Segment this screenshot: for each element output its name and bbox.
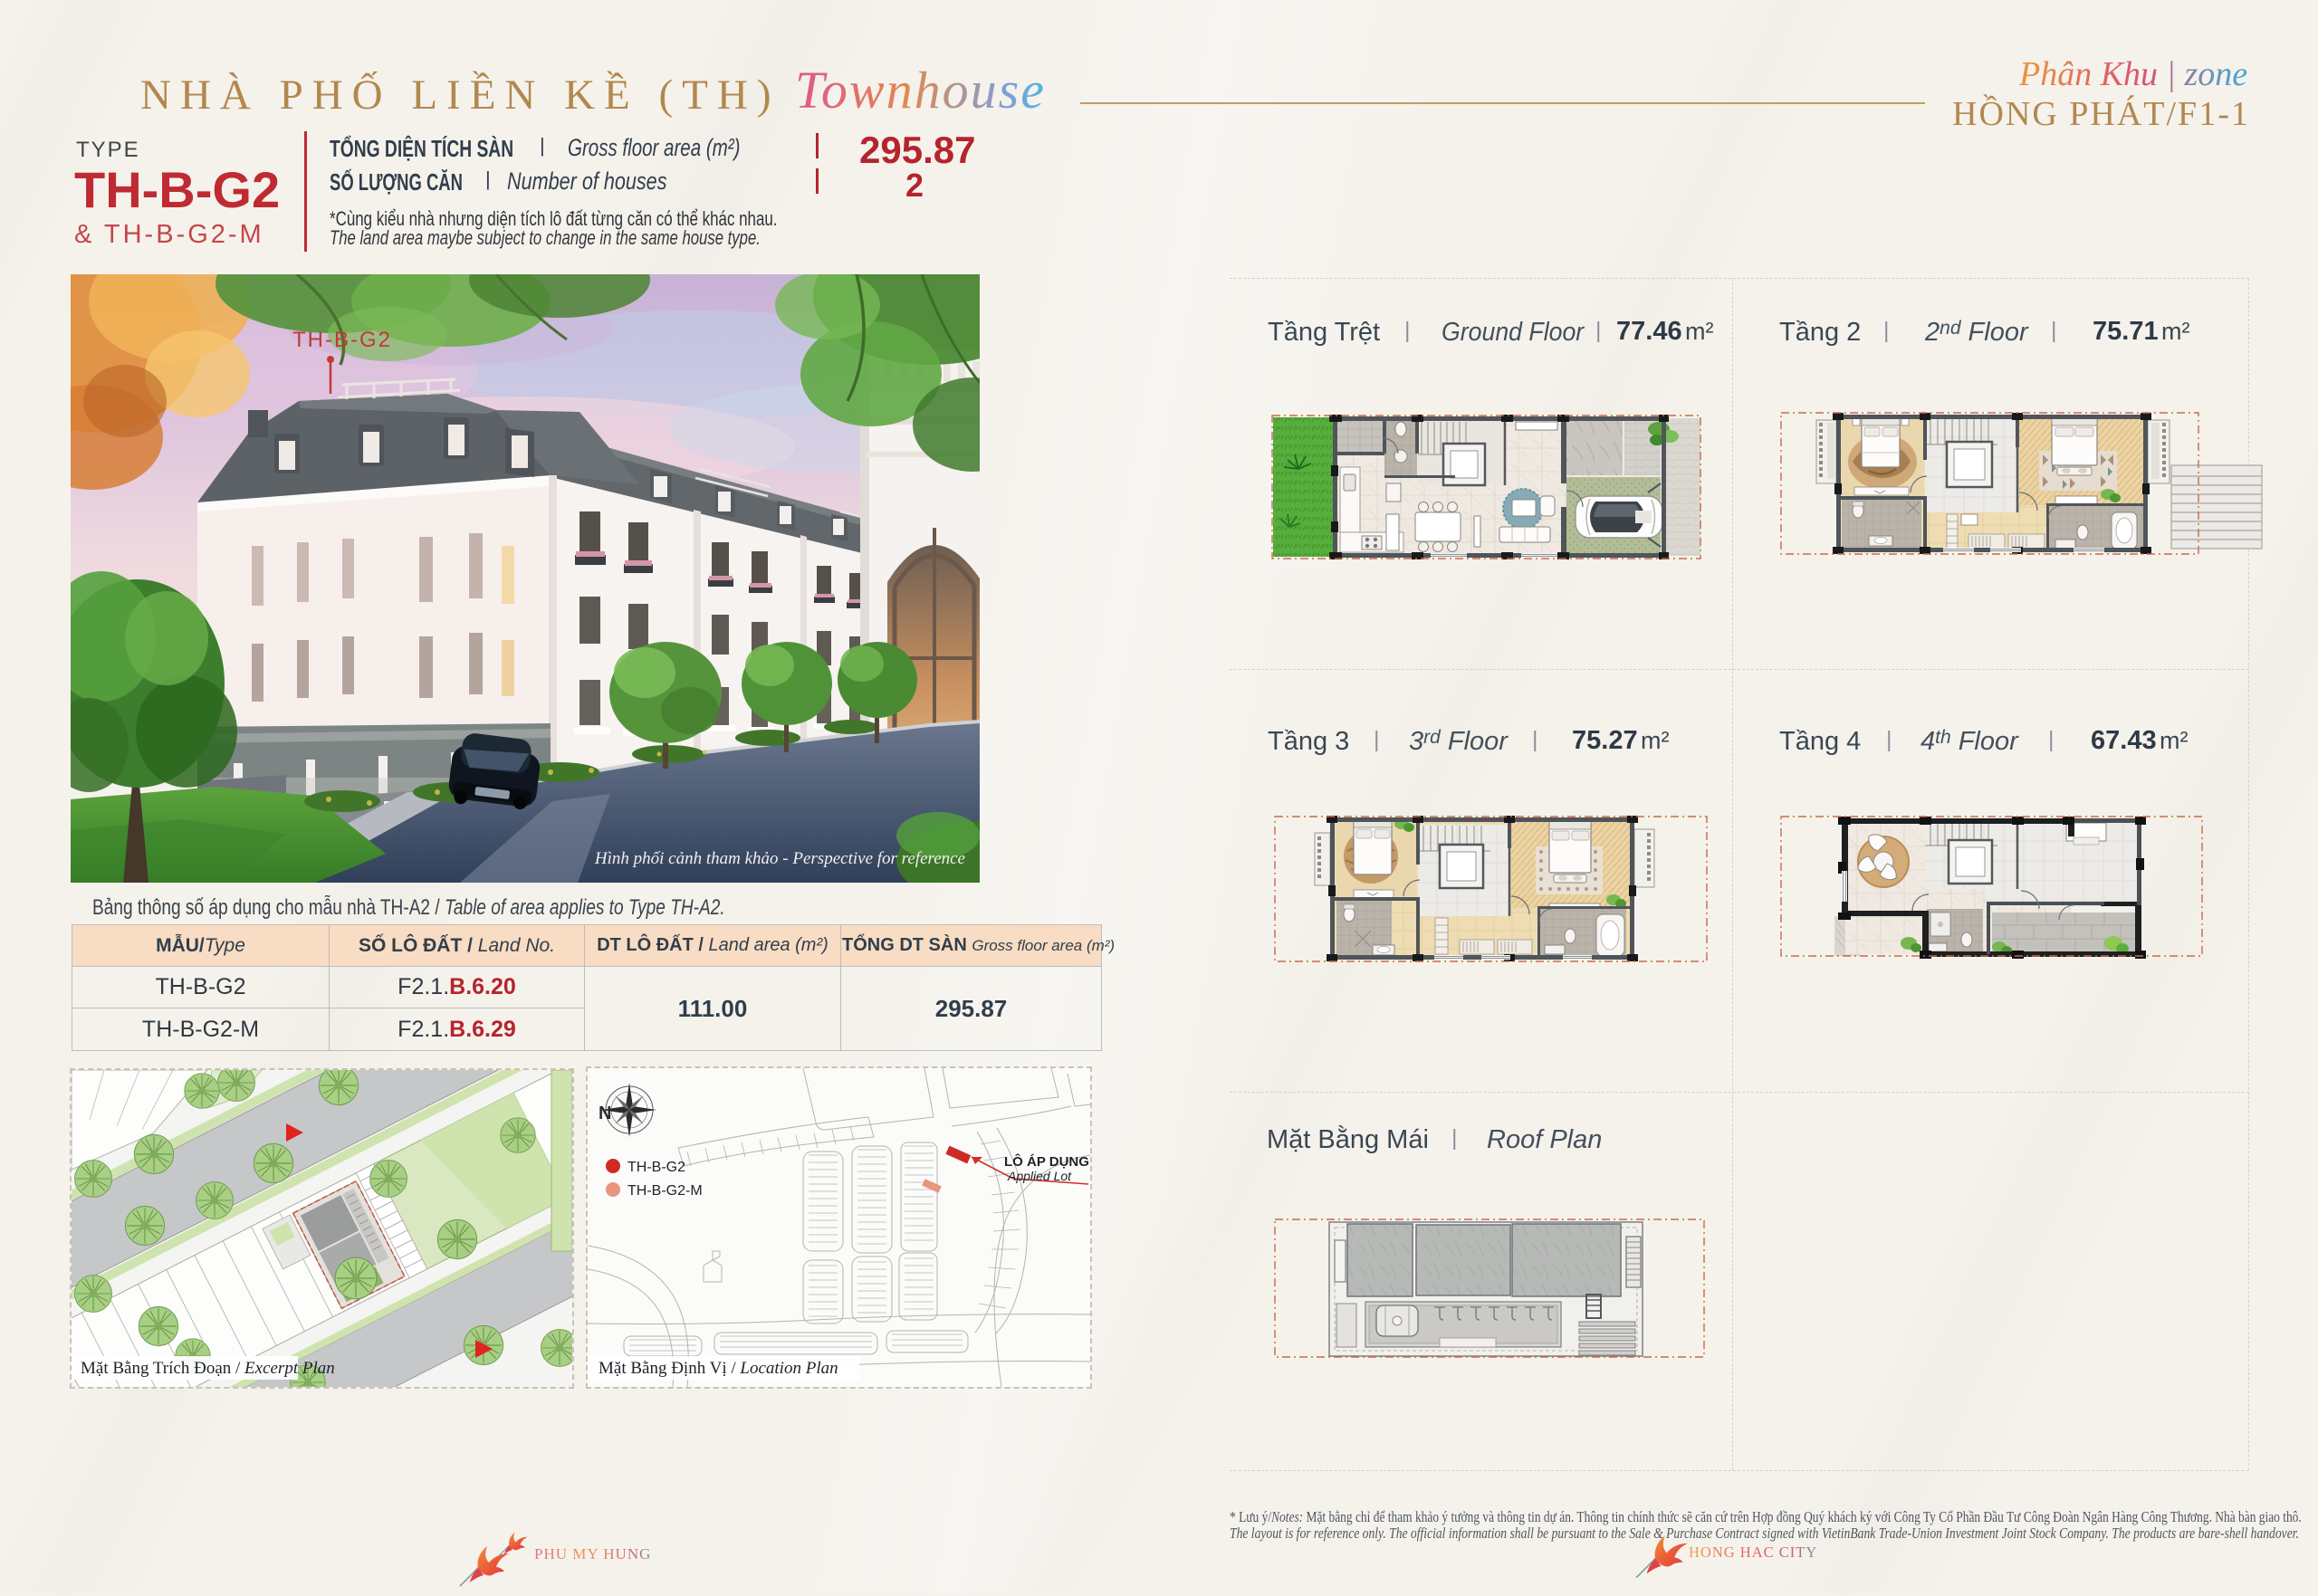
svg-text:TH-B-G2-M: TH-B-G2-M	[627, 1183, 703, 1199]
svg-text:N: N	[599, 1104, 611, 1123]
svg-text:LÔ ÁP DỤNG: LÔ ÁP DỤNG	[1004, 1153, 1089, 1170]
svg-text:Mặt Bằng Định Vị / Location Pl: Mặt Bằng Định Vị / Location Plan	[599, 1359, 838, 1378]
svg-text:TH-B-G2: TH-B-G2	[627, 1160, 685, 1175]
svg-text:Applied Lot: Applied Lot	[1007, 1169, 1072, 1183]
svg-text:TH-B-G2: TH-B-G2	[292, 328, 392, 352]
svg-text:PHU MY HUNG: PHU MY HUNG	[534, 1545, 651, 1563]
svg-text:Mặt Bằng Trích Đoạn / Excerpt: Mặt Bằng Trích Đoạn / Excerpt Plan	[81, 1359, 335, 1378]
svg-text:Hình phối cảnh tham khảo - Per: Hình phối cảnh tham khảo - Perspective f…	[594, 849, 965, 868]
svg-text:HONG HAC CITY: HONG HAC CITY	[1689, 1543, 1817, 1561]
